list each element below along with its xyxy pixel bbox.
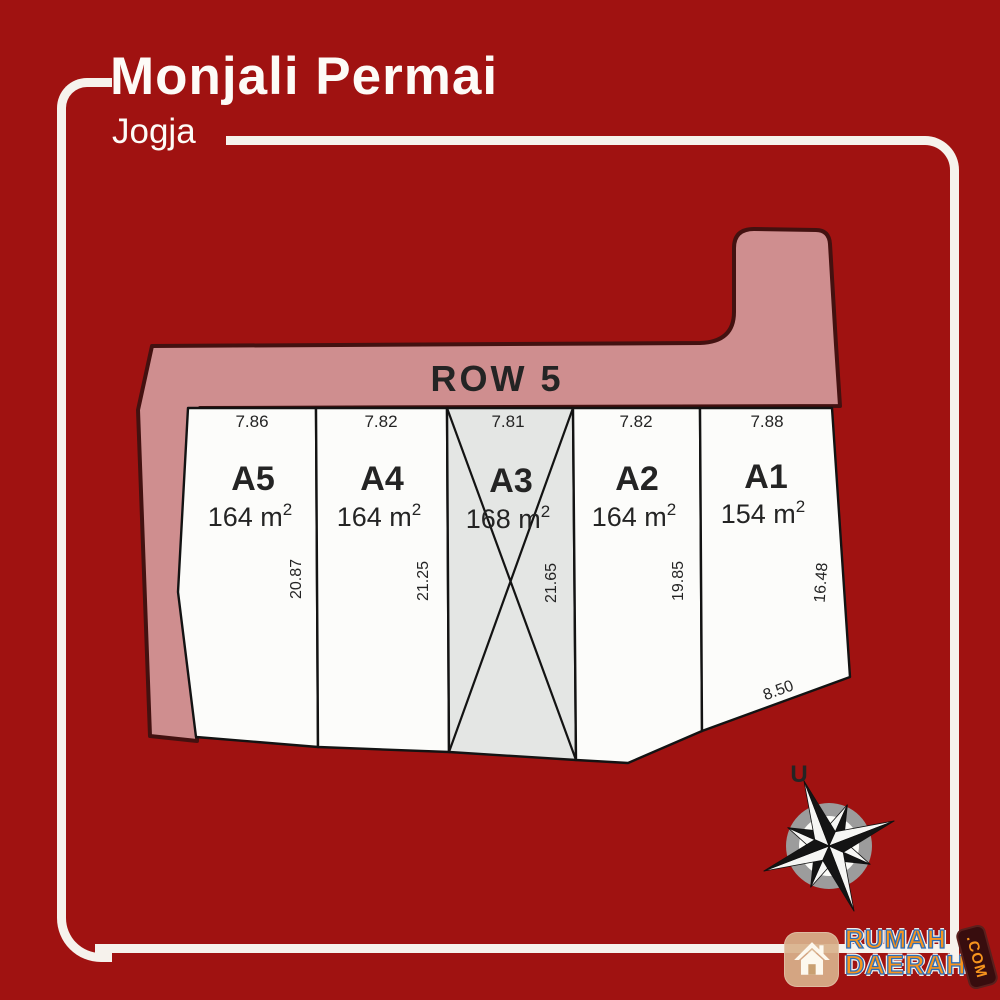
brand-line1: RUMAH <box>845 926 967 952</box>
plot-a5-front-dim: 7.86 <box>235 412 268 431</box>
plot-a4-depth-dim: 21.25 <box>415 561 432 601</box>
house-icon <box>791 939 833 981</box>
plot-a3-area: 168 m2 <box>466 502 551 534</box>
plot-a3-id: A3 <box>489 462 532 500</box>
compass-star <box>739 756 920 937</box>
site-plan-poster: Monjali Permai Jogja ROW 5 7.86 A5 164 m… <box>0 0 1000 1000</box>
plot-a2-depth-dim: 19.85 <box>670 561 687 601</box>
plot-a2-id: A2 <box>615 460 658 498</box>
watermark-logo: RUMAH DAERAH .COM <box>778 926 996 998</box>
plot-a1-id: A1 <box>744 458 787 496</box>
plot-a1-area: 154 m2 <box>721 497 806 529</box>
plot-a4-front-dim: 7.82 <box>364 412 397 431</box>
brand-suffix: .COM <box>963 934 991 980</box>
compass-rose <box>739 756 920 937</box>
plot-a3-depth-dim: 21.65 <box>543 563 560 603</box>
plot-a5-id: A5 <box>231 460 274 498</box>
plot-a1-depth-dim: 16.48 <box>812 562 832 603</box>
plot-a5-area: 164 m2 <box>208 500 293 532</box>
plot-a2-area: 164 m2 <box>592 500 677 532</box>
site-plan-drawing: ROW 5 7.86 A5 164 m2 20.87 7.82 A4 164 m… <box>0 0 1000 1000</box>
plot-a4-area: 164 m2 <box>337 500 422 532</box>
compass-north-label: U <box>790 761 807 788</box>
brand-text: RUMAH DAERAH <box>845 926 967 979</box>
brand-suffix-badge: .COM <box>954 923 999 991</box>
plot-a2-front-dim: 7.82 <box>619 412 652 431</box>
brand-line2: DAERAH <box>845 952 967 979</box>
plot-a4-id: A4 <box>360 460 404 498</box>
plot-a5-depth-dim: 20.87 <box>288 559 305 599</box>
plot-a1-front-dim: 7.88 <box>750 412 783 431</box>
road-label: ROW 5 <box>430 358 563 399</box>
plot-a3-front-dim: 7.81 <box>491 412 524 431</box>
house-badge <box>784 932 839 987</box>
